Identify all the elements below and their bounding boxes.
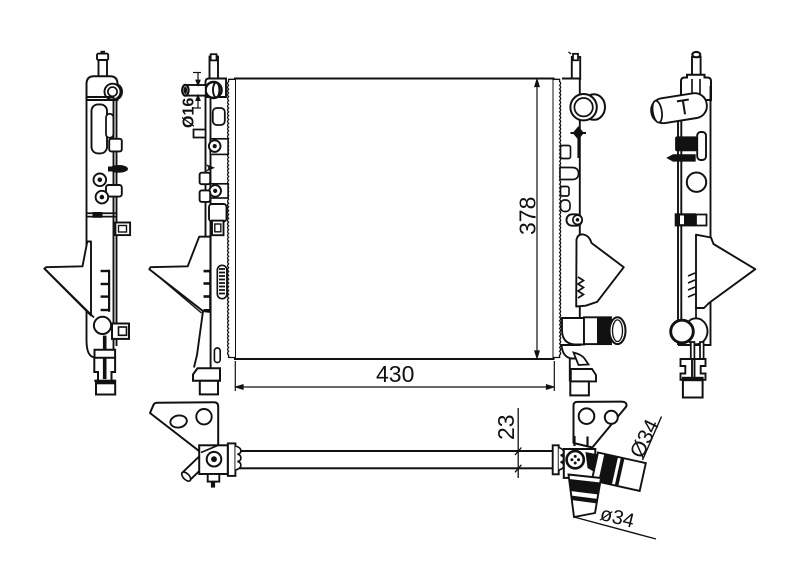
svg-text:430: 430 — [376, 361, 414, 387]
svg-text:378: 378 — [515, 197, 541, 235]
svg-text:Ø16: Ø16 — [181, 98, 198, 128]
svg-text:23: 23 — [493, 414, 519, 440]
